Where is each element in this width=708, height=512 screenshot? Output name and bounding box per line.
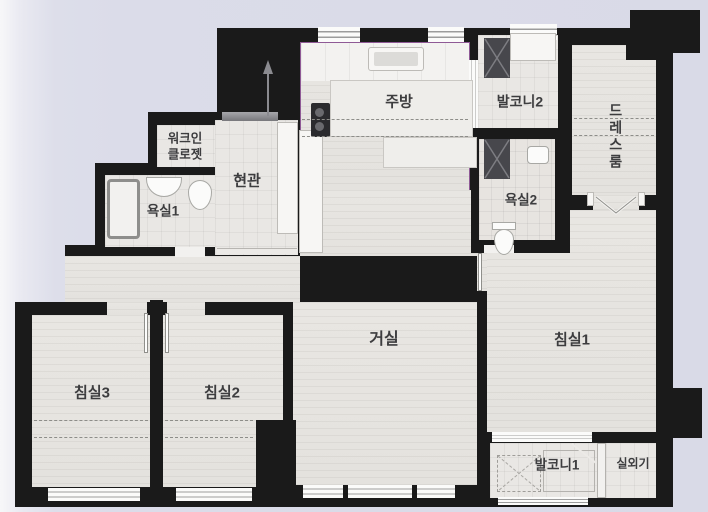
living-label: 거실 (369, 330, 398, 350)
walkin-closet-label: 워크인 클로젯 (168, 131, 203, 162)
bedroom2-label: 침실2 (204, 385, 240, 404)
bedroom3-label: 침실3 (74, 385, 110, 404)
entrance-label: 현관 (233, 173, 261, 192)
bathroom2-label: 욕실2 (505, 193, 537, 210)
bedroom1-label: 침실1 (554, 332, 590, 351)
floor-plan: 주방 발코니2 드레스룸 워크인 클로젯 현관 욕실1 욕실2 거실 침실1 침… (0, 0, 708, 512)
bathroom1-label: 욕실1 (147, 204, 179, 221)
kitchen-label: 주방 (385, 94, 413, 113)
balcony2-label: 발코니2 (497, 93, 543, 111)
balcony1-label: 발코니1 (535, 458, 580, 475)
outdoor-unit-label: 실외기 (616, 457, 649, 472)
dressroom-label: 드레스룸 (606, 103, 624, 171)
lineart-overlay (0, 0, 708, 512)
